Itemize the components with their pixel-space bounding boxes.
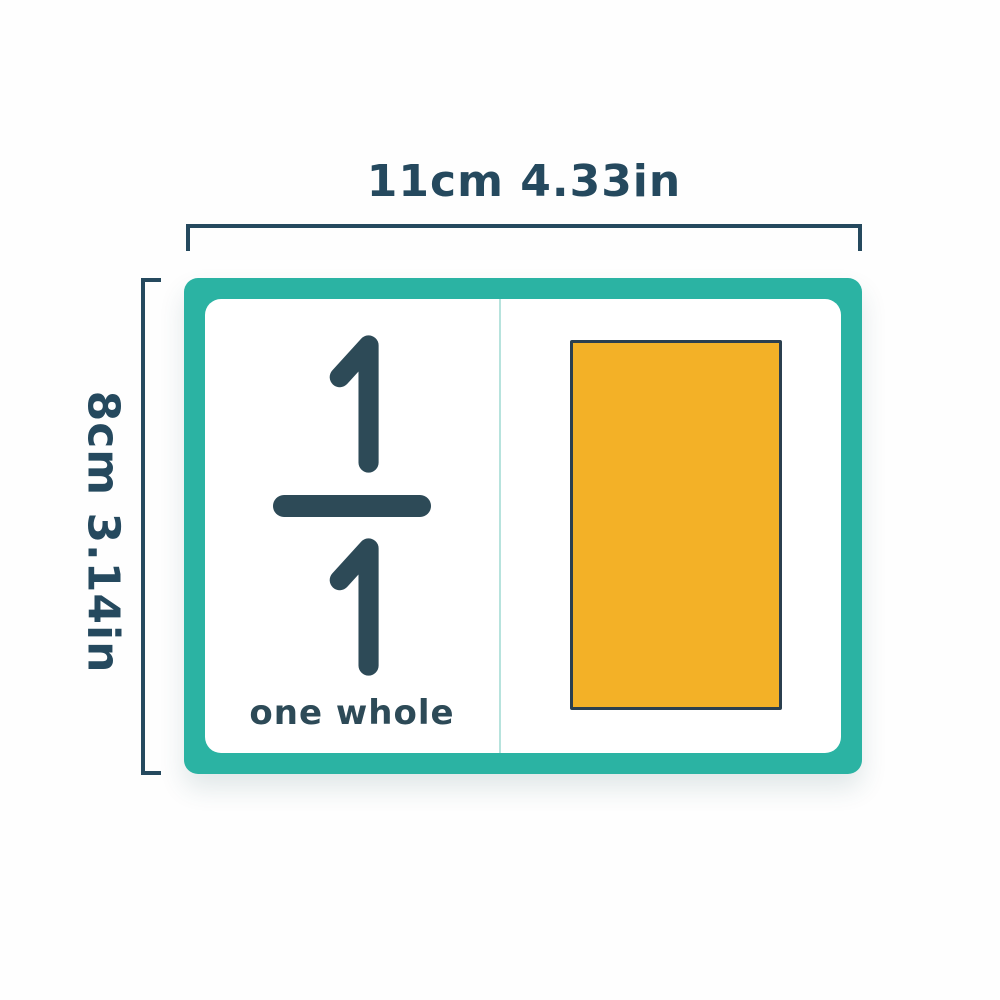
fraction-numerator: 1 [327, 333, 381, 475]
whole-rectangle-shape [570, 340, 782, 710]
denominator-digit-glyph [327, 536, 381, 678]
product-dimension-figure: 11cm 4.33in 8cm 3.14in 1 1 [0, 0, 1000, 1000]
flashcard: 1 1 one whole [184, 278, 862, 774]
fraction-name-label: one whole [205, 693, 499, 733]
width-dimension-line [186, 224, 862, 251]
height-dimension-line [141, 278, 161, 775]
fraction-panel: 1 1 one whole [205, 299, 499, 753]
width-dimension-label: 11cm 4.33in [186, 156, 862, 207]
card-divider-line [499, 299, 501, 753]
height-dimension-label: 8cm 3.14in [78, 391, 129, 674]
numerator-digit-glyph [327, 333, 381, 475]
fraction-denominator: 1 [327, 536, 381, 678]
fraction-bar [273, 495, 431, 517]
flashcard-face: 1 1 one whole [205, 299, 841, 753]
